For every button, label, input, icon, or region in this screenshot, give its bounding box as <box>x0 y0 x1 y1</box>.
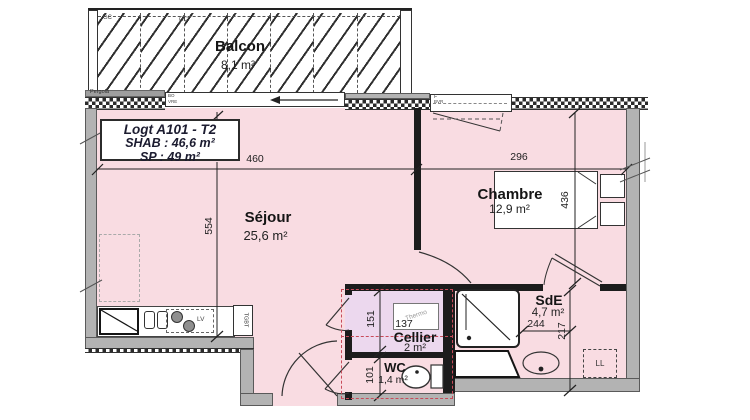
balcon-name: Balcon <box>200 38 280 55</box>
sejour-chambre-wall <box>414 108 421 250</box>
shower-tray <box>456 289 520 348</box>
top-wall-checker-left <box>85 97 165 110</box>
pergola-label: Pergola <box>90 90 109 96</box>
chambre-area: 12,9 m² <box>462 202 557 216</box>
right-wall <box>626 108 640 392</box>
wc-name: WC <box>370 360 420 375</box>
pillow-bottom <box>600 202 625 226</box>
bottom-wall-sde <box>449 378 640 392</box>
cellier-area: 2 m² <box>385 342 445 354</box>
dim-sde-width: 244 <box>518 318 554 330</box>
vre-label: VRE <box>168 100 177 105</box>
pillow-top <box>600 174 625 198</box>
sejour-area: 25,6 m² <box>218 228 313 243</box>
sde-name: SdE <box>519 292 579 308</box>
chambre-name: Chambre <box>460 186 560 203</box>
sliding-bay-door <box>165 92 345 107</box>
gc-label-left: GC <box>103 15 112 21</box>
balcony-top-edge <box>88 8 412 10</box>
dim-chambre-width: 296 <box>499 151 539 163</box>
balcony-strip <box>98 13 140 93</box>
kitchen-sink-basin-left <box>144 311 155 329</box>
ll-label: LL <box>596 359 605 368</box>
balcony-front-dashed-line <box>98 16 400 17</box>
bottom-wall-hall-left <box>240 393 273 406</box>
hall-side-wall <box>240 349 254 395</box>
chambre-bottom-wall-right <box>600 284 626 291</box>
dim-cellier-depth: 151 <box>365 302 377 336</box>
dim-sejour-depth: 554 <box>203 209 215 243</box>
gc-label-right: GC <box>179 17 188 23</box>
dim-sde-depth: 217 <box>556 314 568 348</box>
balcon-area: 8,1 m² <box>200 58 276 72</box>
balcony-strip <box>313 13 356 93</box>
entrance-door-gap <box>273 393 337 406</box>
dim-cellier-width: 137 <box>386 318 422 330</box>
dishwasher-slot <box>166 309 214 333</box>
chambre-window-glass-line <box>433 103 507 104</box>
chambre-doorway-gap <box>414 250 421 284</box>
lv-label: LV <box>197 317 204 324</box>
balcony-left-post <box>88 10 98 95</box>
kitchen-corner-unit <box>99 308 139 335</box>
sp-area: SP : 49 m² <box>102 151 238 165</box>
washing-machine-slot: LL <box>583 349 617 378</box>
shab-area: SHAB : 46,6 m² <box>102 137 238 151</box>
electrical-panel: TGBT <box>233 305 253 336</box>
dim-wc-depth: 101 <box>364 358 376 392</box>
title-block: Logt A101 - T2 SHAB : 46,6 m² SP : 49 m² <box>100 119 240 161</box>
logement-ref: Logt A101 - T2 <box>102 123 238 137</box>
left-wall <box>85 108 97 340</box>
bo-label: BO <box>168 94 175 99</box>
floor-plan: GC GC Pergola BO VRE F BVR LL Thermo LV <box>0 0 750 420</box>
balcony-strip <box>357 13 400 93</box>
dim-chambre-depth: 436 <box>559 183 571 217</box>
sde-doorway-gap <box>543 284 600 291</box>
entry-hall-floor <box>254 340 345 393</box>
sejour-dashed-zone <box>99 234 140 302</box>
dim-sejour-width: 460 <box>235 153 275 165</box>
window-bvr-label: BVR <box>434 100 443 105</box>
balcony-right-post <box>400 10 412 95</box>
sejour-name: Séjour <box>218 209 318 226</box>
balcony-strip <box>140 13 183 93</box>
tgbt-label: TGBT <box>242 313 248 328</box>
bottom-left-wall-checker <box>85 348 254 353</box>
